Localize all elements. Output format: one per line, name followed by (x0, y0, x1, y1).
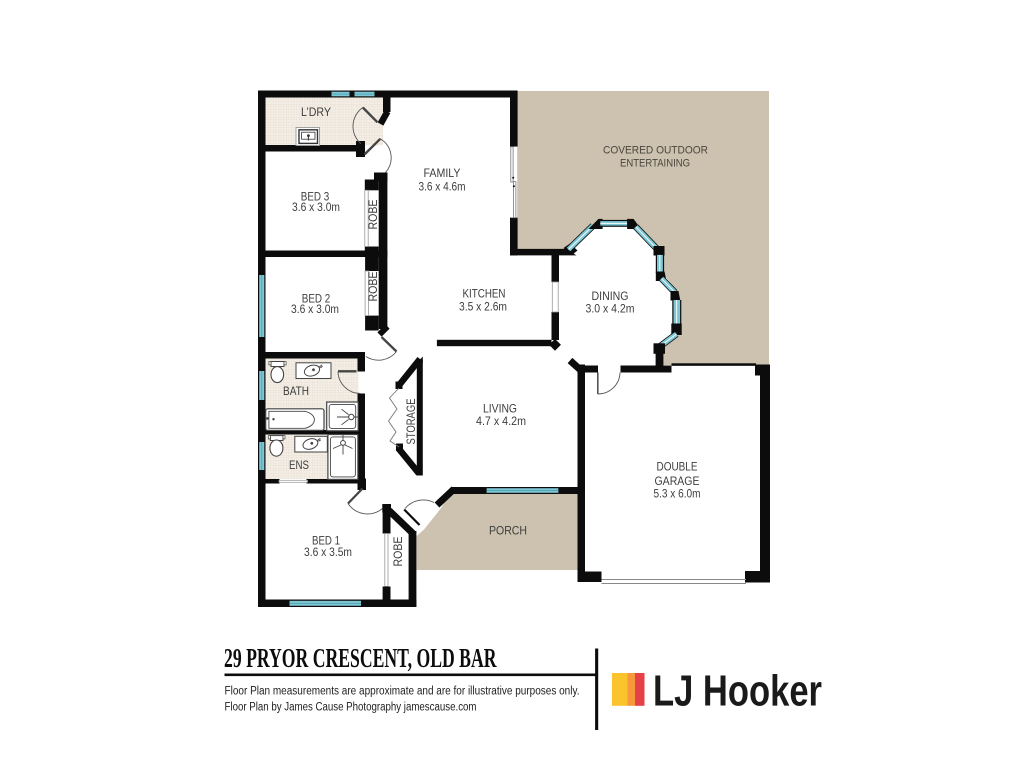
svg-text:3.6 x 4.6m: 3.6 x 4.6m (419, 181, 466, 194)
svg-text:3.0 x 4.2m: 3.0 x 4.2m (586, 303, 635, 316)
svg-text:3.6 x 3.0m: 3.6 x 3.0m (292, 201, 340, 214)
svg-text:BATH: BATH (283, 385, 309, 398)
svg-text:ENS: ENS (289, 459, 309, 472)
svg-text:KITCHEN: KITCHEN (463, 288, 506, 301)
svg-text:3.6 x 3.0m: 3.6 x 3.0m (291, 303, 339, 316)
svg-text:LIVING: LIVING (483, 403, 517, 416)
svg-text:LJ Hooker: LJ Hooker (653, 667, 822, 716)
svg-text:STORAGE: STORAGE (404, 399, 418, 445)
svg-text:GARAGE: GARAGE (655, 475, 700, 488)
svg-text:5.3 x 6.0m: 5.3 x 6.0m (654, 488, 701, 501)
svg-text:FAMILY: FAMILY (424, 167, 461, 180)
svg-text:L’DRY: L’DRY (301, 106, 331, 119)
svg-text:29 PRYOR CRESCENT, OLD BAR: 29 PRYOR CRESCENT, OLD BAR (224, 643, 497, 673)
svg-text:3.6 x 3.5m: 3.6 x 3.5m (304, 546, 352, 559)
svg-text:ROBE: ROBE (366, 200, 380, 230)
svg-text:4.7 x 4.2m: 4.7 x 4.2m (476, 415, 526, 428)
svg-text:Floor Plan by James Cause Phot: Floor Plan by James Cause Photography ja… (225, 702, 477, 714)
svg-text:3.5 x 2.6m: 3.5 x 2.6m (459, 301, 507, 314)
svg-text:ROBE: ROBE (391, 537, 405, 567)
svg-text:ENTERTAINING: ENTERTAINING (620, 158, 690, 170)
svg-text:DOUBLE: DOUBLE (657, 461, 698, 474)
svg-text:Floor Plan measurements are ap: Floor Plan measurements are approximate … (225, 686, 580, 698)
svg-text:ROBE: ROBE (366, 272, 380, 302)
svg-text:COVERED OUTDOOR: COVERED OUTDOOR (603, 145, 708, 157)
svg-text:DINING: DINING (592, 290, 629, 303)
svg-text:PORCH: PORCH (489, 525, 527, 538)
